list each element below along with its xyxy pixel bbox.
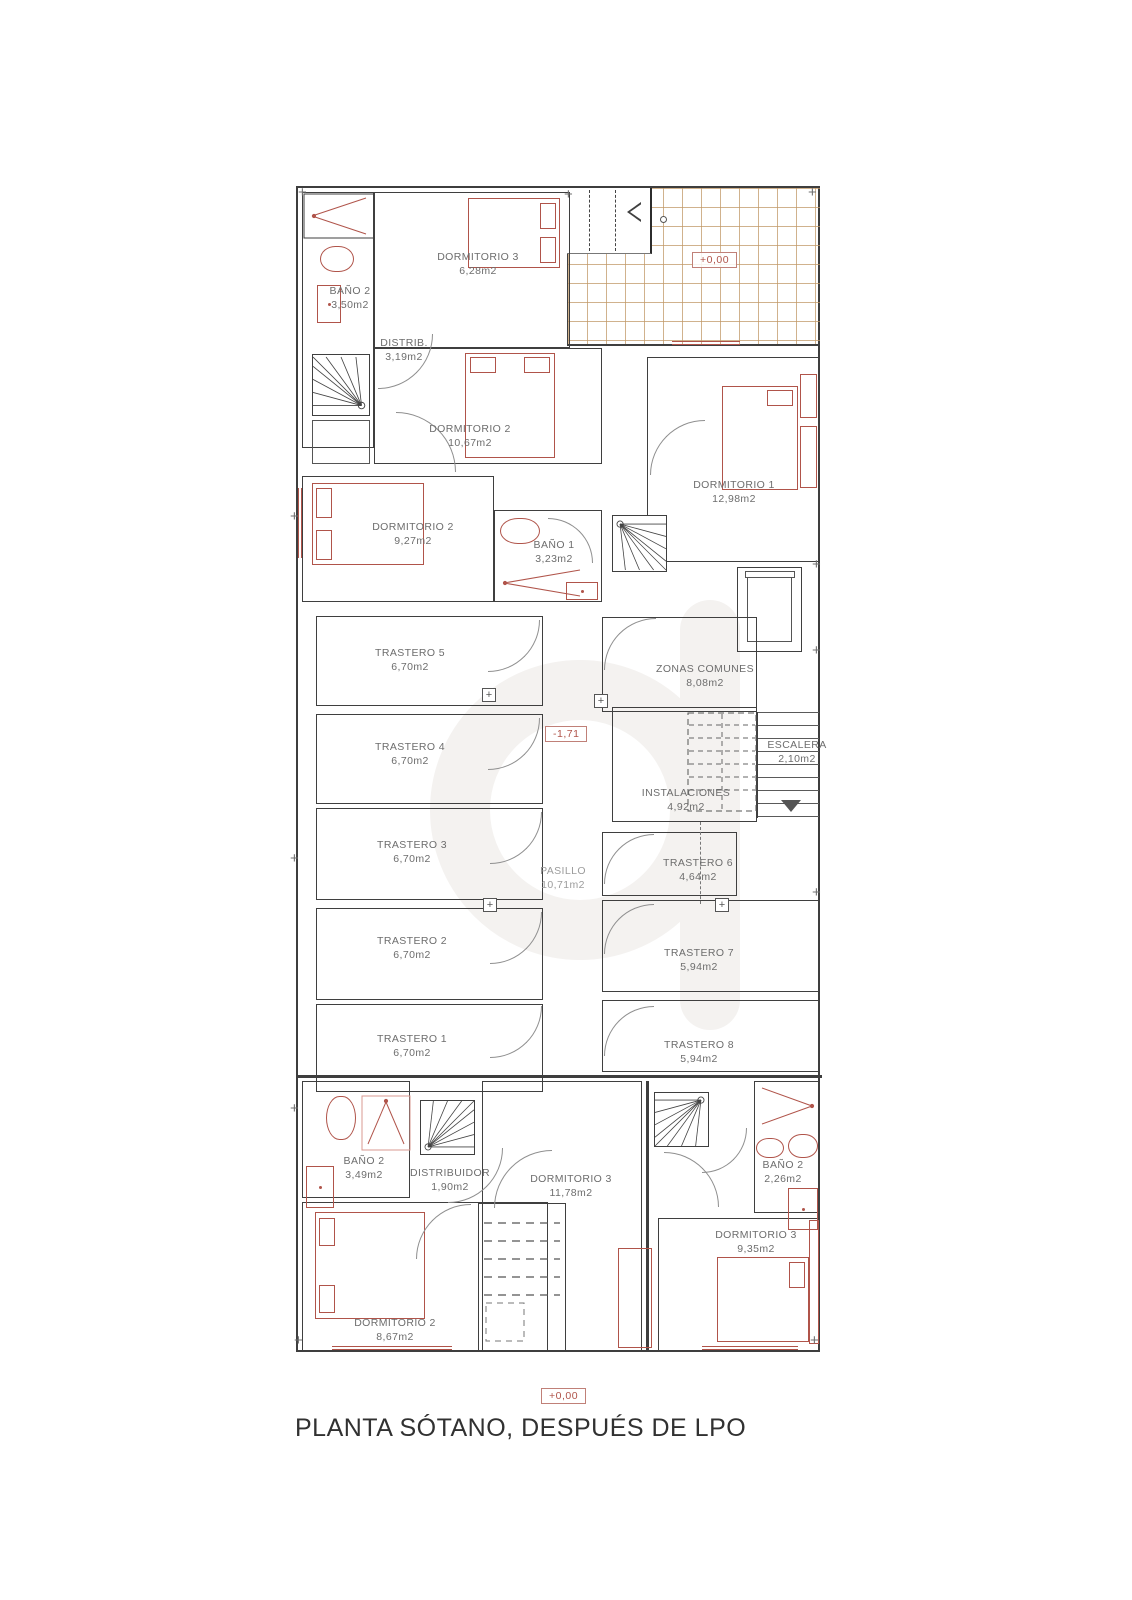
pillow-icon (319, 1285, 335, 1313)
room-area: 11,78m2 (530, 1186, 612, 1200)
room-area: 10,71m2 (540, 878, 586, 892)
floor-plan-canvas: +0,00 (0, 0, 1132, 1600)
room-name: DORMITORIO 3 (715, 1228, 797, 1242)
room-area: 3,49m2 (344, 1168, 385, 1182)
room-area: 3,50m2 (330, 298, 371, 312)
room-name: DORMITORIO 3 (437, 250, 519, 264)
wall (298, 1075, 822, 1078)
bed-icon (722, 386, 798, 490)
survey-tick-icon: + (290, 512, 299, 522)
bed-icon (315, 1212, 425, 1319)
toilet-icon (788, 1134, 818, 1158)
room-label-dormitorio2-mid: DORMITORIO 2 9,27m2 (372, 520, 454, 548)
level-marker-corridor: -1,71 (545, 726, 587, 742)
pillow-icon (540, 237, 556, 263)
room-area: 2,10m2 (767, 752, 826, 766)
room-name: DORMITORIO 2 (429, 422, 511, 436)
room-label-trastero2: TRASTERO 2 6,70m2 (377, 934, 447, 962)
room-area: 1,90m2 (410, 1180, 490, 1194)
room-label-dormitorio3-bottom-center: DORMITORIO 3 11,78m2 (530, 1172, 612, 1200)
wardrobe-icon (809, 1220, 819, 1344)
room-name: BAÑO 2 (330, 284, 371, 298)
room-area: 9,27m2 (372, 534, 454, 548)
window-icon (332, 1346, 452, 1350)
wall-tick-icon: + (594, 694, 608, 708)
room-label-distrib: DISTRIB. 3,19m2 (380, 336, 428, 364)
stair-direction-arrow (781, 800, 801, 812)
exterior-stair-icon (567, 188, 652, 254)
room-name: DORMITORIO 3 (530, 1172, 612, 1186)
room-name: PASILLO (540, 864, 586, 878)
room-area: 8,08m2 (656, 676, 754, 690)
column-circle-icon (660, 216, 667, 223)
room-name: TRASTERO 6 (663, 856, 733, 870)
room-name: TRASTERO 8 (664, 1038, 734, 1052)
spiral-stair-icon (612, 515, 667, 572)
under-stair-closet (312, 420, 370, 464)
room-label-dormitorio2-top: DORMITORIO 2 10,67m2 (429, 422, 511, 450)
plan-title: PLANTA SÓTANO, DESPUÉS DE LPO (295, 1414, 746, 1443)
room-name: DORMITORIO 1 (693, 478, 775, 492)
room-name: TRASTERO 1 (377, 1032, 447, 1046)
bed-icon (717, 1257, 809, 1342)
room-label-trastero1: TRASTERO 1 6,70m2 (377, 1032, 447, 1060)
room-area: 6,70m2 (377, 948, 447, 962)
room-area: 6,70m2 (375, 754, 445, 768)
room-label-instalaciones: INSTALACIONES 4,92m2 (642, 786, 730, 814)
room-name: BAÑO 2 (763, 1158, 804, 1172)
survey-tick-icon: + (290, 1104, 299, 1114)
room-label-dormitorio2-bottom: DORMITORIO 2 8,67m2 (354, 1316, 436, 1344)
room-area: 4,92m2 (642, 800, 730, 814)
room-label-trastero8: TRASTERO 8 5,94m2 (664, 1038, 734, 1066)
room-area: 5,94m2 (664, 960, 734, 974)
room-label-trastero7: TRASTERO 7 5,94m2 (664, 946, 734, 974)
room-label-trastero6: TRASTERO 6 4,64m2 (663, 856, 733, 884)
sink-icon (566, 582, 598, 600)
room-label-escalera: ESCALERA 2,10m2 (767, 738, 826, 766)
pillow-icon (524, 357, 550, 373)
pillow-icon (316, 488, 332, 518)
wall-tick-icon: + (715, 898, 729, 912)
level-marker-terrace: +0,00 (692, 252, 737, 268)
shower-icon (758, 1084, 818, 1128)
room-label-dormitorio3-bottom-right: DORMITORIO 3 9,35m2 (715, 1228, 797, 1256)
room-label-dormitorio1: DORMITORIO 1 12,98m2 (693, 478, 775, 506)
room-name: TRASTERO 3 (377, 838, 447, 852)
room-name: ZONAS COMUNES (656, 662, 754, 676)
pillow-icon (789, 1262, 805, 1288)
room-label-zonas-comunes: ZONAS COMUNES 8,08m2 (656, 662, 754, 690)
room-name: DORMITORIO 2 (372, 520, 454, 534)
room-area: 6,70m2 (375, 660, 445, 674)
room-area: 4,64m2 (663, 870, 733, 884)
room-area: 6,28m2 (437, 264, 519, 278)
elevator-door-slot (745, 571, 795, 578)
room-label-dormitorio3-top: DORMITORIO 3 6,28m2 (437, 250, 519, 278)
bidet-icon (756, 1138, 784, 1158)
pillow-icon (316, 530, 332, 560)
room-name: INSTALACIONES (642, 786, 730, 800)
room-area: 3,23m2 (534, 552, 575, 566)
room-area: 3,19m2 (380, 350, 428, 364)
stair-dash-line (615, 190, 616, 251)
survey-tick-icon: + (564, 190, 573, 200)
room-label-pasillo: PASILLO 10,71m2 (540, 864, 586, 892)
dashed-stair-icon (480, 1205, 564, 1349)
room-label-bano2-top: BAÑO 2 3,50m2 (330, 284, 371, 312)
room-name: TRASTERO 4 (375, 740, 445, 754)
room-name: BAÑO 1 (534, 538, 575, 552)
survey-tick-icon: + (298, 188, 307, 198)
stair-arrow-fill (630, 203, 643, 221)
room-area: 6,70m2 (377, 1046, 447, 1060)
room-area: 12,98m2 (693, 492, 775, 506)
window-icon (672, 341, 740, 345)
wall-tick-icon: + (482, 688, 496, 702)
room-name: TRASTERO 2 (377, 934, 447, 948)
room-name: DISTRIBUIDOR (410, 1166, 490, 1180)
pillow-icon (540, 203, 556, 229)
pillow-icon (470, 357, 496, 373)
nightstand-icon (800, 374, 817, 418)
room-name: DORMITORIO 2 (354, 1316, 436, 1330)
pillow-icon (767, 390, 793, 406)
sink-icon (306, 1166, 334, 1208)
spiral-stair-icon (654, 1092, 709, 1147)
room-name: BAÑO 2 (344, 1154, 385, 1168)
room-label-bano2-bottom-right: BAÑO 2 2,26m2 (763, 1158, 804, 1186)
shower-icon (304, 194, 374, 238)
pillow-icon (319, 1218, 335, 1246)
toilet-icon (326, 1096, 356, 1140)
spiral-stair-icon (420, 1100, 475, 1155)
room-name: TRASTERO 7 (664, 946, 734, 960)
room-name: TRASTERO 5 (375, 646, 445, 660)
room-label-distribuidor: DISTRIBUIDOR 1,90m2 (410, 1166, 490, 1194)
survey-tick-icon: + (294, 1336, 303, 1346)
spiral-stair-icon (312, 354, 370, 416)
survey-tick-icon: + (812, 888, 821, 898)
level-marker-street: +0,00 (541, 1388, 586, 1404)
room-name: ESCALERA (767, 738, 826, 752)
survey-tick-icon: + (812, 646, 821, 656)
survey-tick-icon: + (812, 560, 821, 570)
room-area: 5,94m2 (664, 1052, 734, 1066)
floor-plan: +0,00 (296, 186, 820, 1352)
room-area: 10,67m2 (429, 436, 511, 450)
room-area: 9,35m2 (715, 1242, 797, 1256)
room-area: 2,26m2 (763, 1172, 804, 1186)
room-label-trastero5: TRASTERO 5 6,70m2 (375, 646, 445, 674)
survey-tick-icon: + (810, 1336, 819, 1346)
survey-tick-icon: + (290, 854, 299, 864)
room-label-bano2-bottom-left: BAÑO 2 3,49m2 (344, 1154, 385, 1182)
room-area: 8,67m2 (354, 1330, 436, 1344)
room-name: DISTRIB. (380, 336, 428, 350)
wardrobe-icon (800, 426, 817, 488)
wardrobe-icon (618, 1248, 652, 1348)
sink-icon (788, 1188, 818, 1230)
wall-tick-icon: + (483, 898, 497, 912)
survey-tick-icon: + (808, 188, 817, 198)
window-icon (702, 1346, 798, 1350)
room-label-trastero3: TRASTERO 3 6,70m2 (377, 838, 447, 866)
toilet-icon (320, 246, 354, 272)
room-area: 6,70m2 (377, 852, 447, 866)
room-label-trastero4: TRASTERO 4 6,70m2 (375, 740, 445, 768)
stair-dash-line (589, 190, 590, 251)
room-label-bano1: BAÑO 1 3,23m2 (534, 538, 575, 566)
shower-icon (362, 1096, 410, 1150)
